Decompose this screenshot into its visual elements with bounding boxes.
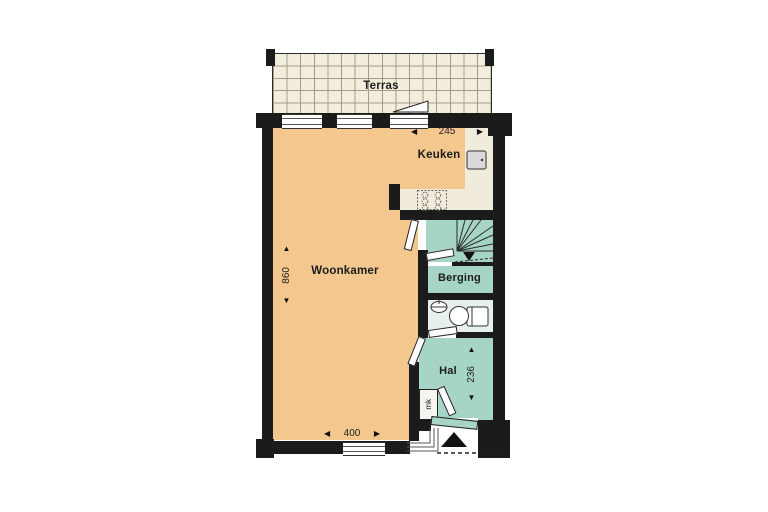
- left-wall: [262, 113, 273, 455]
- living-room-label: Woonkamer: [295, 265, 395, 277]
- dim-arrow-left-icon: ◀: [324, 430, 330, 438]
- kitchen-floor: [465, 128, 493, 210]
- window-bottom: [343, 442, 385, 456]
- dim-living-depth: ▲ 860 ▼: [279, 245, 294, 305]
- entrance-arrow-icon: [441, 432, 467, 447]
- toilet-room-area: [426, 300, 493, 332]
- window-top-middle: [337, 114, 372, 129]
- dim-kitchen-width-value: 245: [439, 126, 456, 137]
- dim-arrow-down-icon: ▼: [468, 394, 476, 402]
- dim-hall-depth: ▲ 236 ▼: [464, 346, 479, 402]
- dim-arrow-up-icon: ▲: [468, 346, 476, 354]
- storage-toilet-wall: [426, 293, 493, 300]
- dim-arrow-right-icon: ▶: [477, 128, 483, 136]
- counter-wall-stub: [389, 184, 400, 210]
- right-wall: [493, 113, 505, 430]
- dim-kitchen-width: ◀ 245 ▶: [411, 125, 483, 138]
- dim-arrow-down-icon: ▼: [283, 297, 291, 305]
- terrace-post-left: [266, 49, 275, 66]
- dim-arrow-left-icon: ◀: [411, 128, 417, 136]
- bottom-right-wall-block: [478, 420, 510, 458]
- inner-wall-vertical: [418, 250, 428, 338]
- stairs-storage-wall: [452, 262, 493, 266]
- storage-room-label: Berging: [426, 272, 493, 284]
- dim-hall-depth-value: 236: [466, 366, 477, 383]
- kitchen-counter: [400, 189, 465, 210]
- living-room-area: [273, 128, 418, 440]
- meter-cupboard-label: mk: [424, 399, 433, 410]
- dim-living-width-value: 400: [344, 428, 361, 439]
- dim-living-width: ◀ 400 ▶: [324, 427, 380, 440]
- terrace-label: Terras: [272, 80, 490, 92]
- toilet-hall-wall: [456, 332, 493, 338]
- bottom-wall: [262, 441, 410, 454]
- window-top-left: [282, 114, 322, 129]
- dim-arrow-up-icon: ▲: [283, 245, 291, 253]
- kitchen-label: Keuken: [411, 149, 467, 161]
- kitchen-stairs-wall: [400, 210, 493, 220]
- dim-arrow-right-icon: ▶: [374, 430, 380, 438]
- dim-living-depth-value: 860: [281, 267, 292, 284]
- floor-plan-canvas: Terras mk: [0, 0, 768, 512]
- terrace-post-right: [485, 49, 494, 66]
- meter-cupboard: mk: [419, 389, 438, 420]
